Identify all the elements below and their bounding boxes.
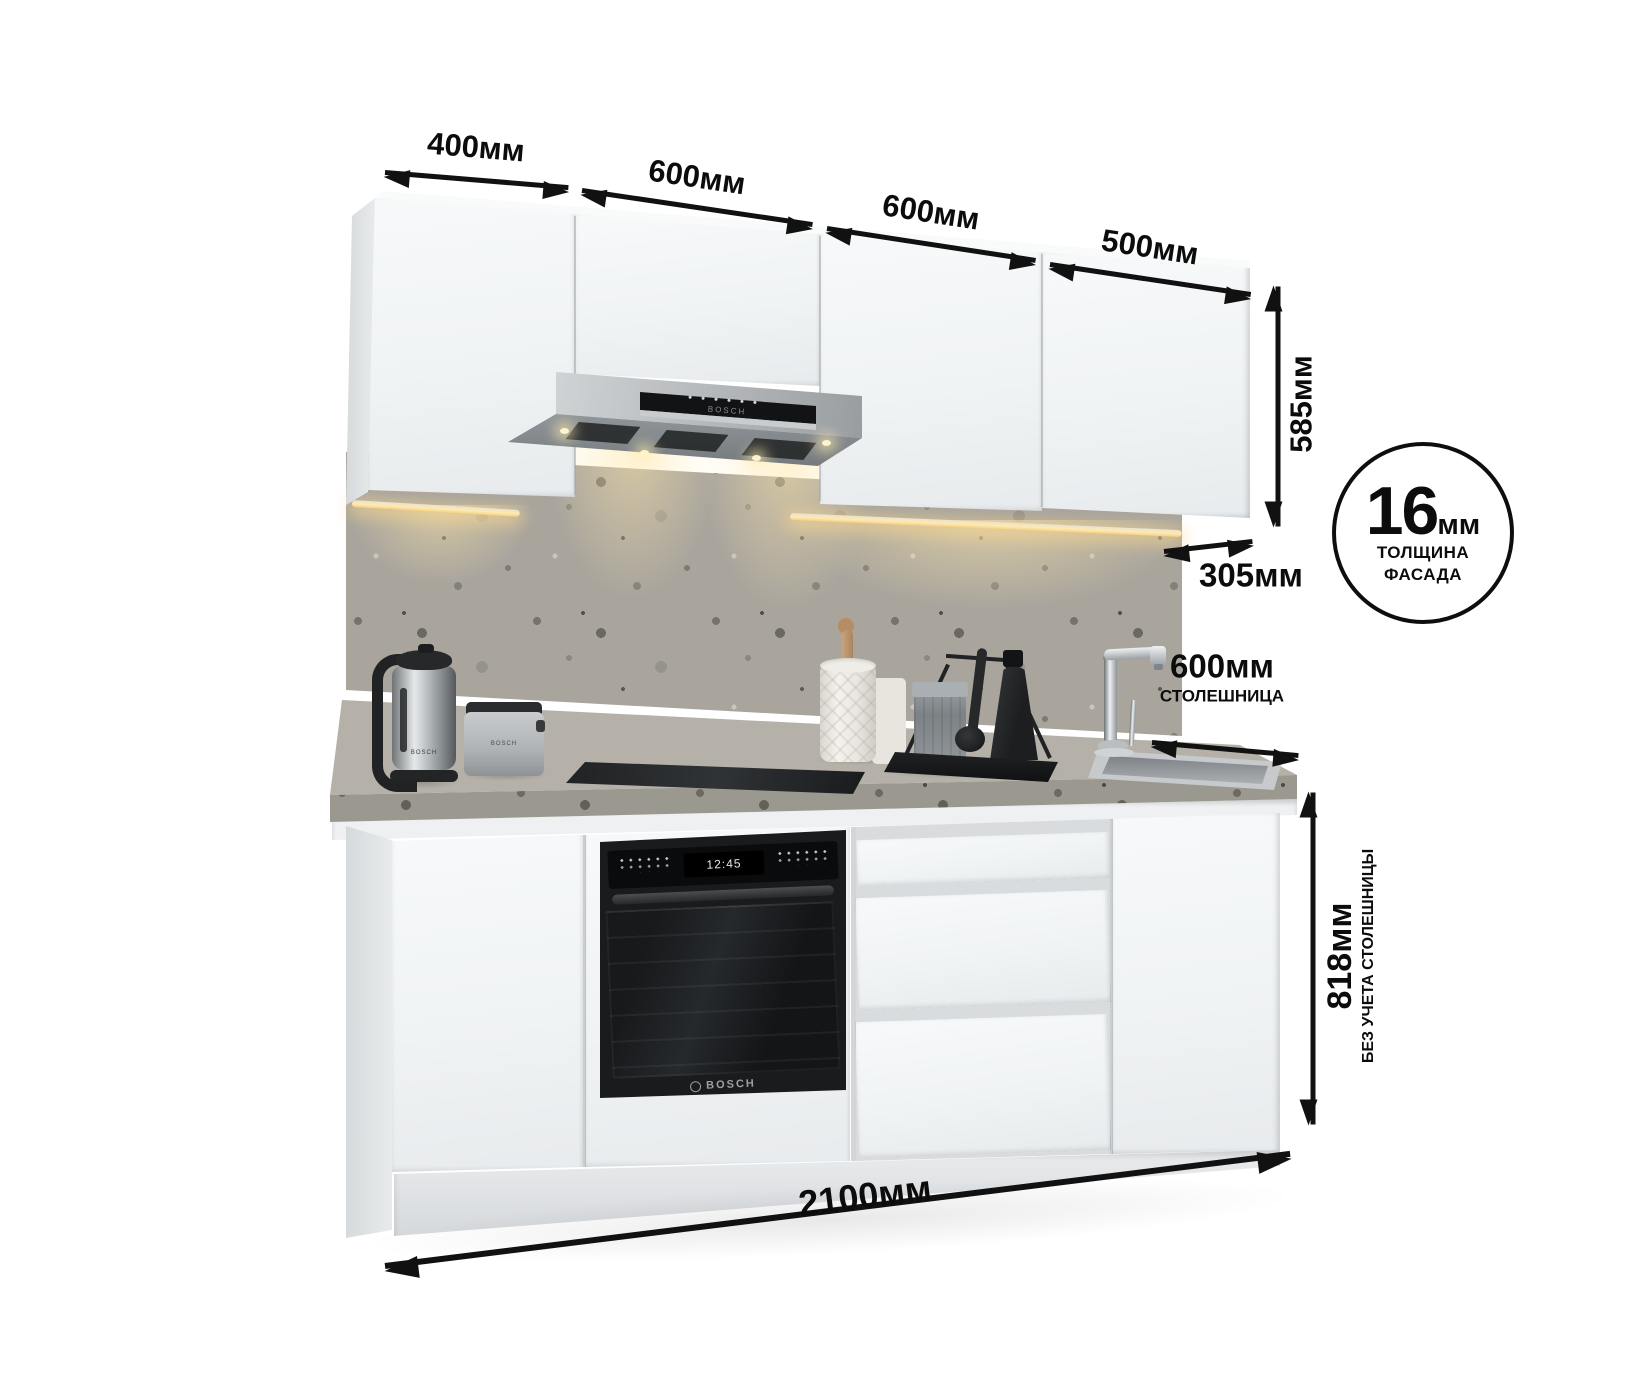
kettle-brand-label: BOSCH [411,750,437,756]
paper-towel-roll-back [872,678,906,764]
paper-towel-roll [820,664,876,762]
toaster-body: BOSCH [464,712,544,776]
dimension-label-wall-600a: 600мм [646,155,747,200]
faucet-riser [1104,658,1117,744]
kettle-base [390,770,458,782]
facade-thickness-badge: 16 мм ТОЛЩИНА ФАСАДА [1332,442,1514,624]
base-cabinet-door-500 [1112,813,1280,1154]
faucet-nozzle [1154,664,1163,670]
dimension-arrow-wall-400 [385,170,569,190]
base-cabinet-door-400 [392,835,583,1172]
wall-cabinet-door-600-over-hood [575,214,820,386]
kettle-lid [396,650,452,670]
oven-buttons-right [776,848,831,866]
wall-cabinet-door-600 [820,234,1042,511]
soap-dispenser-cap [1003,650,1023,667]
paper-towel-roll-cap [820,658,876,673]
oven-door-glass [605,901,840,1079]
dimension-label-wall-400: 400мм [426,128,526,167]
dimension-arrow-wall-height-585 [1276,287,1281,527]
drawer-front-1 [856,832,1109,886]
hood-lamp [640,450,649,456]
dimension-label-wall-depth-305: 305мм [1199,559,1303,592]
facade-thickness-value-row: 16 мм [1366,481,1481,542]
kitchen-render-stage: BOSCH 12:45 BOSCH BOS [0,0,1632,1400]
dimension-label-base-height-818: 818мм [1323,902,1357,1009]
oven-brand-label: BOSCH [706,1078,756,1092]
dimension-label-worktop-600: 600мм [1170,650,1274,683]
dimension-arrow-base-height-818 [1311,793,1316,1125]
facade-thickness-unit: мм [1437,509,1480,542]
faucet-spout-head [1150,646,1166,666]
under-cabinet-glow [348,505,533,585]
hood-lamp [560,428,569,434]
hood-lamp [822,440,831,446]
facade-thickness-value: 16 [1366,481,1438,542]
dimension-caption-base-height: БЕЗ УЧЕТА СТОЛЕШНИЦЫ [1361,849,1377,1063]
base-door-seam [851,827,856,1161]
drawer-front-3 [855,1014,1111,1158]
drawer-front-2 [855,890,1111,1010]
facade-thickness-caption-line2: ФАСАДА [1384,564,1462,585]
oven-buttons-left [618,855,673,873]
bosch-logo-icon [690,1080,701,1091]
dimension-caption-worktop: СТОЛЕШНИЦА [1160,688,1284,705]
toaster-lever [536,720,545,732]
facade-thickness-caption-line1: ТОЛЩИНА [1377,542,1469,563]
kettle-gauge [400,688,407,752]
base-cabinet-side-panel [346,826,392,1238]
dimension-label-wall-600b: 600мм [880,189,981,234]
oven-display: 12:45 [684,850,765,877]
wall-door-seam [1041,254,1043,507]
base-door-seam [1110,819,1113,1154]
base-door-seam [583,835,586,1167]
dish-towel-flap [912,682,968,697]
wall-cabinet-door-400 [368,198,575,497]
faucet-base-plate [1094,748,1134,757]
kettle-lid-knob [418,644,434,653]
toaster-brand-label: BOSCH [491,741,517,747]
wall-door-seam [574,216,576,495]
dish-brush-head [955,726,985,752]
hood-lamp [752,455,761,461]
dimension-label-wall-height-585: 585мм [1286,355,1317,453]
